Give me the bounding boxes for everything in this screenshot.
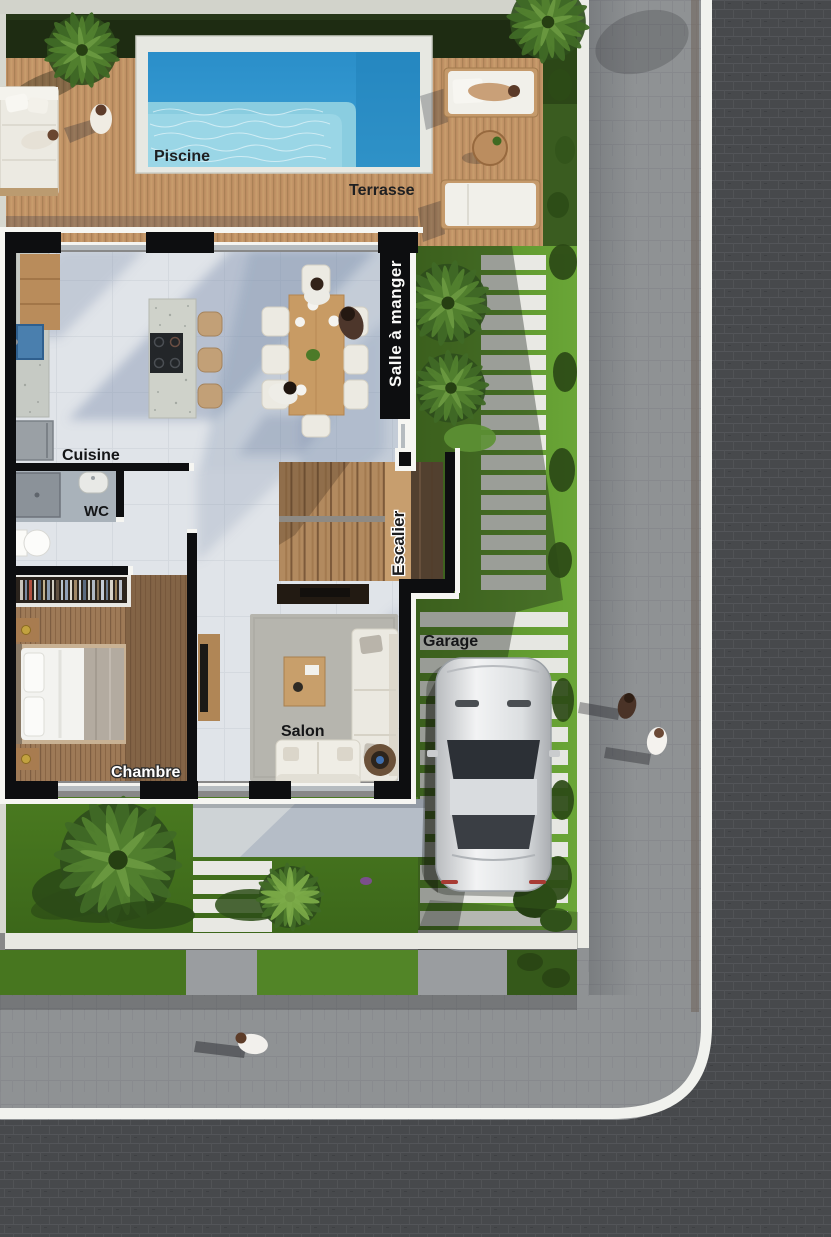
svg-text:Chambre: Chambre: [111, 764, 180, 781]
svg-text:Terrasse: Terrasse: [349, 182, 415, 199]
svg-text:Cuisine: Cuisine: [62, 447, 120, 464]
svg-text:Escalier: Escalier: [389, 510, 408, 576]
svg-text:WC: WC: [84, 503, 109, 520]
svg-text:Salle à manger: Salle à manger: [386, 260, 405, 387]
svg-text:Garage: Garage: [423, 633, 478, 650]
svg-text:Salon: Salon: [281, 723, 325, 740]
svg-text:Piscine: Piscine: [154, 148, 210, 165]
